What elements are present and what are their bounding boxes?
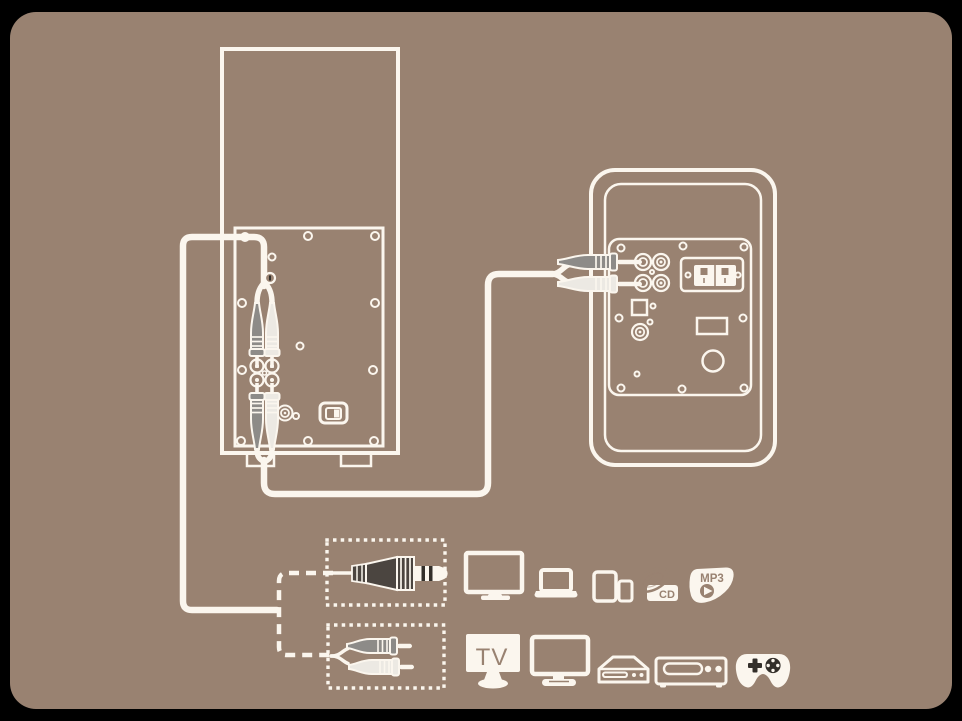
cd-label: CD xyxy=(659,589,675,601)
tv-label: TV xyxy=(476,644,509,671)
connection-diagram: CD MP3 TV xyxy=(0,0,962,721)
diagram-canvas: CD MP3 TV xyxy=(0,0,962,721)
mp3-label: MP3 xyxy=(700,573,724,585)
diagram-background xyxy=(10,12,952,709)
